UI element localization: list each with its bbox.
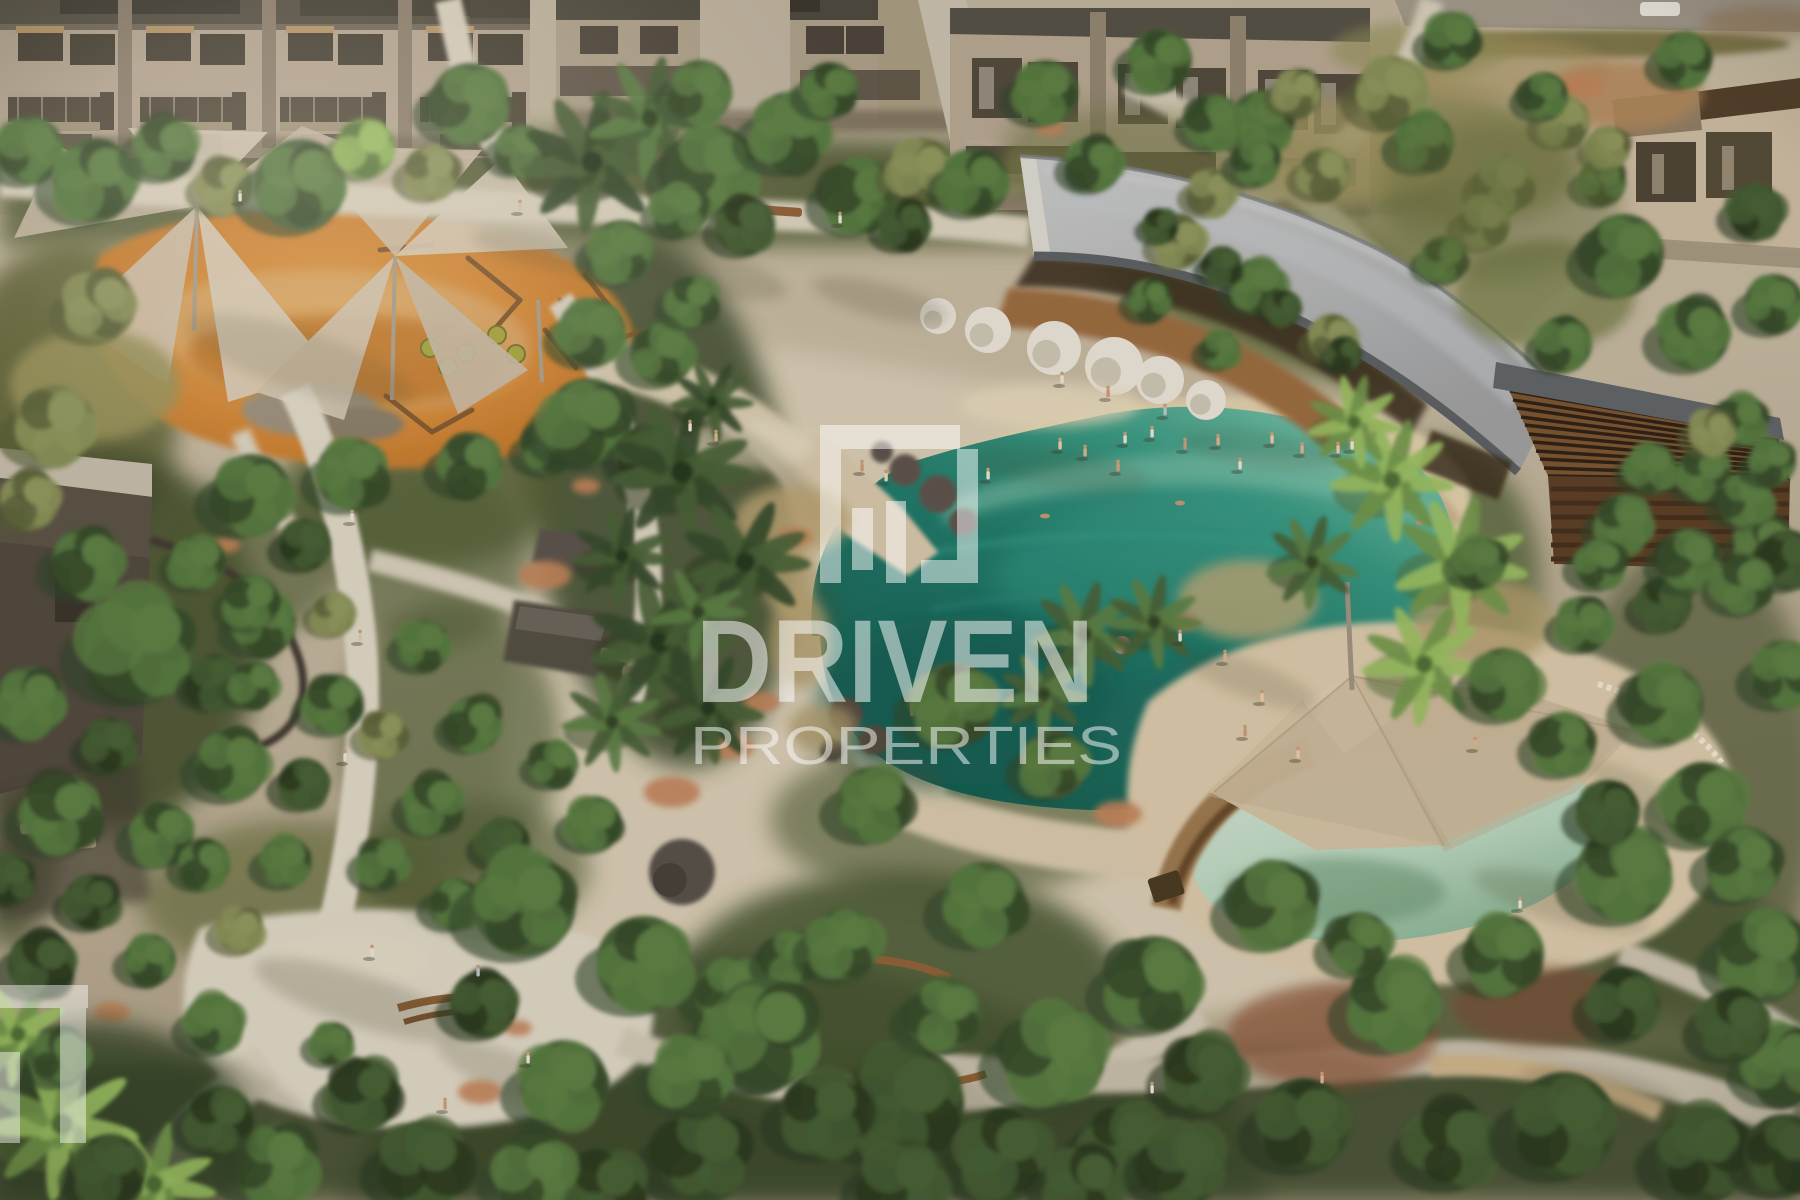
svg-text:DRIVEN: DRIVEN: [696, 596, 1094, 728]
svg-text:PROPERTIES: PROPERTIES: [690, 716, 1122, 776]
